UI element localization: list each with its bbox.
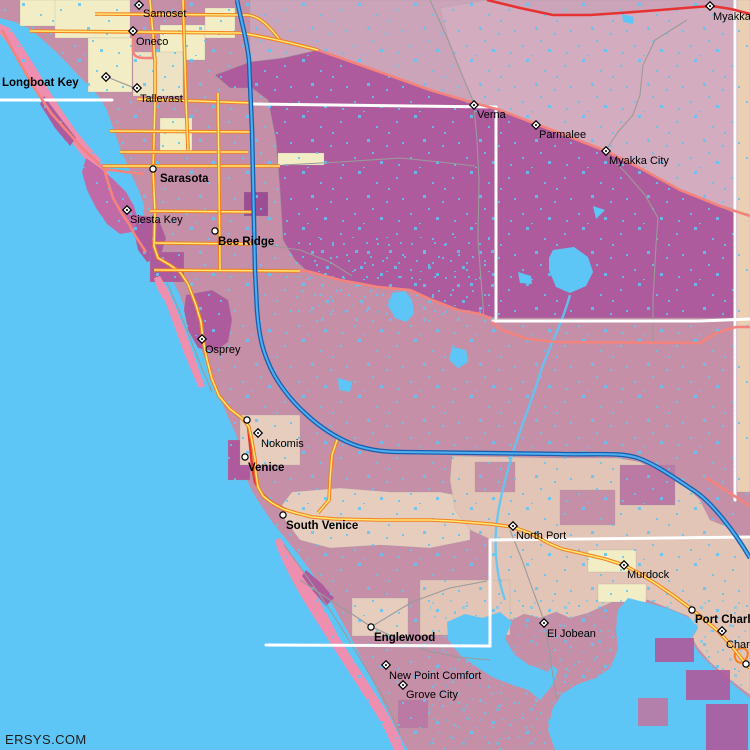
city-label-tallevast: Tallevast bbox=[140, 93, 183, 105]
city-label-siesta-key: Siesta Key bbox=[130, 214, 183, 226]
county-line-sw bbox=[266, 645, 490, 646]
city-marker-sarasota bbox=[150, 166, 156, 172]
city-marker-venice bbox=[242, 454, 248, 460]
city-marker-port-charlotte bbox=[689, 607, 695, 613]
city-label-longboat-key: Longboat Key bbox=[2, 77, 79, 89]
pc-canal-2 bbox=[686, 670, 730, 700]
city-label-samoset: Samoset bbox=[143, 8, 186, 20]
road-myrtle-st bbox=[110, 131, 252, 132]
city-label-charlotte-harbor: Charlotte Harbor bbox=[726, 639, 750, 651]
city-label-englewood: Englewood bbox=[374, 632, 435, 644]
pc-canal-3 bbox=[706, 704, 748, 750]
city-label-nokomis: Nokomis bbox=[261, 438, 304, 450]
city-label-murdock: Murdock bbox=[627, 569, 670, 581]
city-label-port-charlotte: Port Charlotte bbox=[695, 614, 750, 626]
pc-canal-4 bbox=[638, 698, 668, 726]
city-label-el-jobean: El Jobean bbox=[547, 628, 596, 640]
city-marker-unlabeled bbox=[244, 417, 250, 423]
city-label-venice: Venice bbox=[248, 462, 284, 474]
ersys-map: SamosetOnecoLongboat KeyTallevastSarasot… bbox=[0, 0, 750, 750]
city-marker-south-venice bbox=[280, 512, 286, 518]
city-marker-unlabeled bbox=[743, 661, 749, 667]
city-label-verna: Verna bbox=[477, 109, 507, 121]
map-canvas: SamosetOnecoLongboat KeyTallevastSarasot… bbox=[0, 0, 750, 750]
watermark: ERSYS.COM bbox=[5, 732, 87, 747]
city-label-grove-city: Grove City bbox=[406, 689, 458, 701]
pc-canal-1 bbox=[655, 638, 694, 662]
road-clark-road bbox=[154, 270, 300, 271]
city-label-south-venice: South Venice bbox=[286, 520, 358, 532]
city-marker-englewood bbox=[368, 624, 374, 630]
road-bahia-vista bbox=[150, 211, 256, 212]
city-label-myakka-city: Myakka City bbox=[609, 155, 669, 167]
city-label-north-port: North Port bbox=[516, 530, 566, 542]
city-label-osprey: Osprey bbox=[205, 344, 241, 356]
city-label-bee-ridge: Bee Ridge bbox=[218, 236, 274, 248]
city-label-sarasota: Sarasota bbox=[160, 173, 209, 185]
city-marker-bee-ridge bbox=[212, 228, 218, 234]
city-label-parmalee: Parmalee bbox=[539, 129, 586, 141]
city-label-oneco: Oneco bbox=[136, 36, 168, 48]
city-label-myakka: Myakka bbox=[713, 11, 750, 23]
